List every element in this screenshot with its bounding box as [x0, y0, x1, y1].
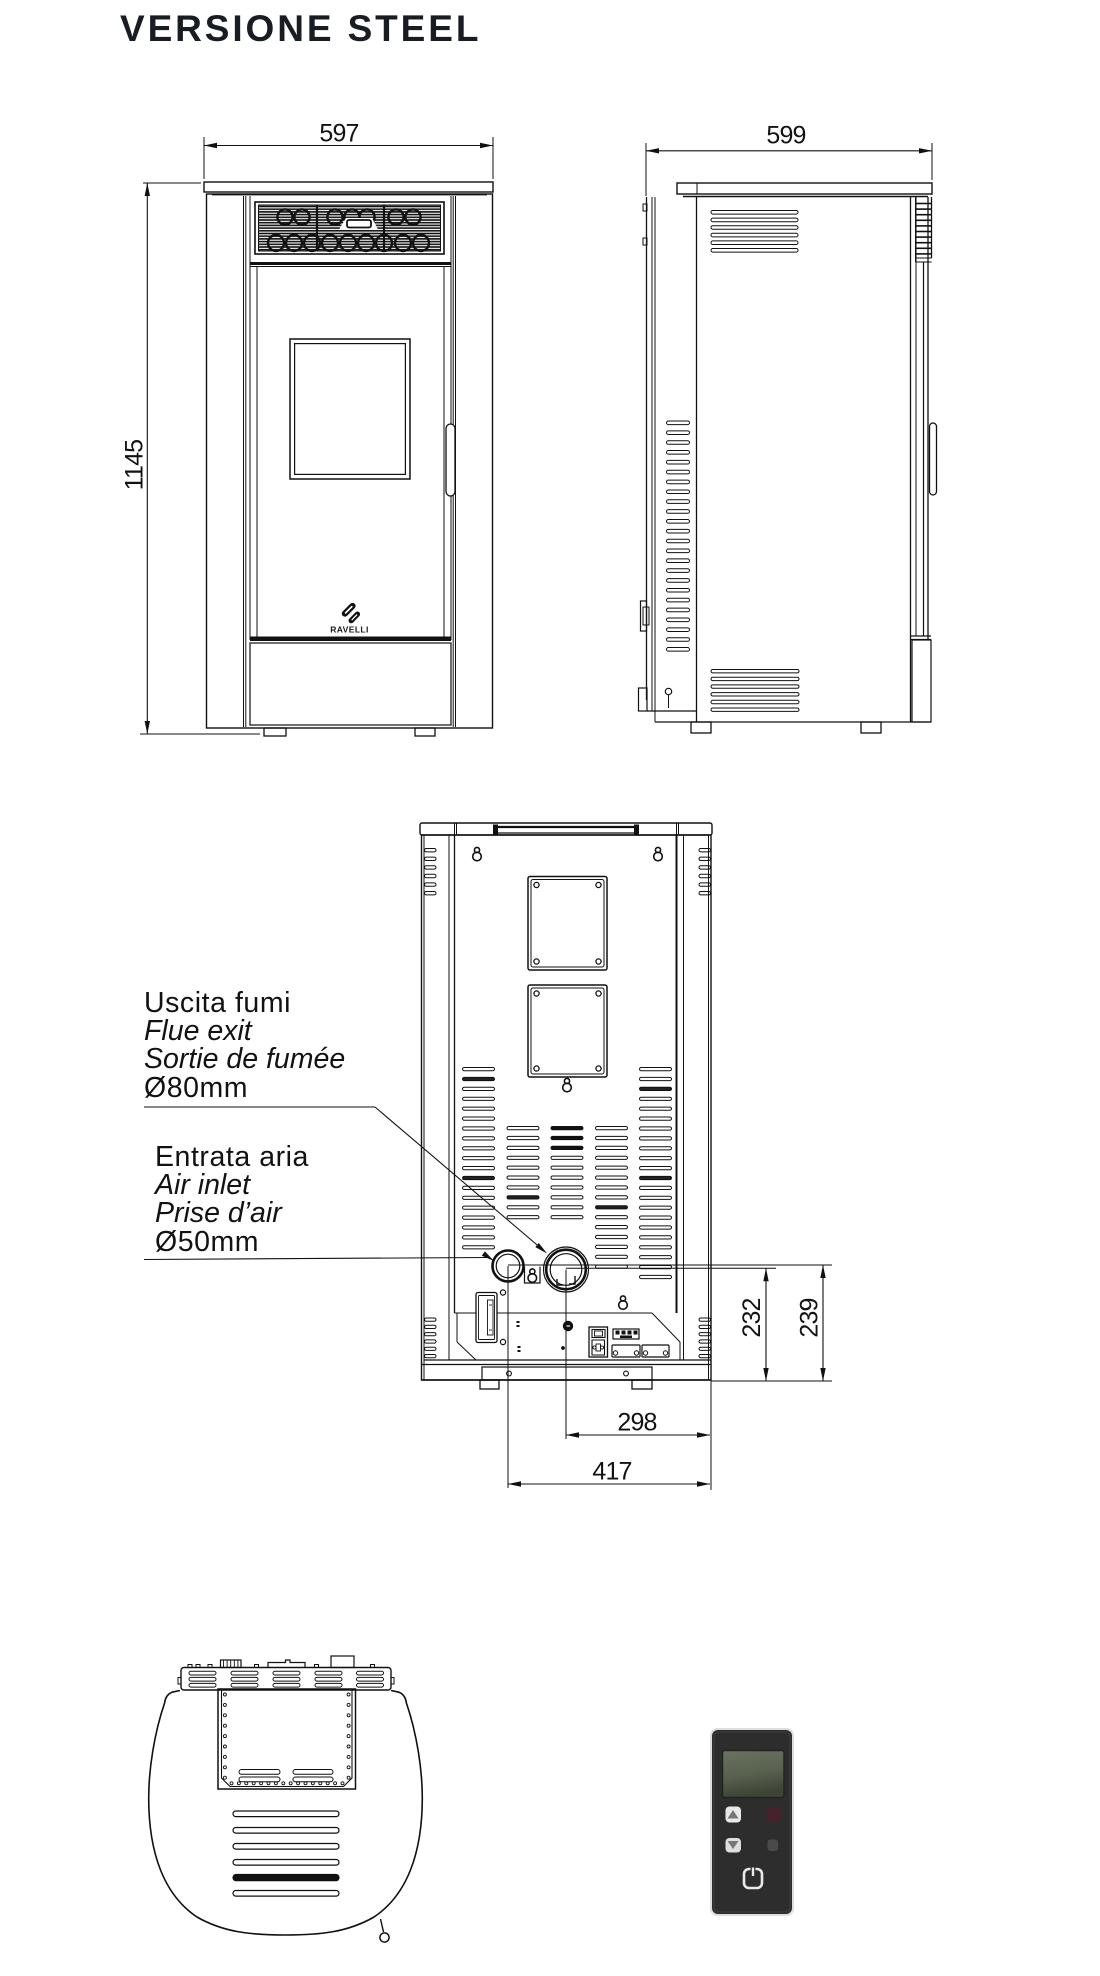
svg-text:232: 232 — [738, 1298, 766, 1337]
svg-text:298: 298 — [617, 1409, 656, 1437]
svg-text:Prise d’air: Prise d’air — [155, 1197, 283, 1229]
svg-text:Ø50mm: Ø50mm — [155, 1226, 259, 1258]
svg-text:597: 597 — [319, 119, 358, 147]
svg-text:599: 599 — [766, 122, 805, 150]
svg-text:Sortie de fumée: Sortie de fumée — [144, 1043, 345, 1075]
svg-text:VERSIONE STEEL: VERSIONE STEEL — [120, 8, 481, 49]
svg-text:417: 417 — [592, 1458, 631, 1486]
svg-text:Ø80mm: Ø80mm — [144, 1072, 248, 1104]
svg-text:1145: 1145 — [121, 440, 149, 491]
svg-text:239: 239 — [796, 1298, 824, 1337]
svg-text:RAVELLI: RAVELLI — [330, 625, 369, 635]
